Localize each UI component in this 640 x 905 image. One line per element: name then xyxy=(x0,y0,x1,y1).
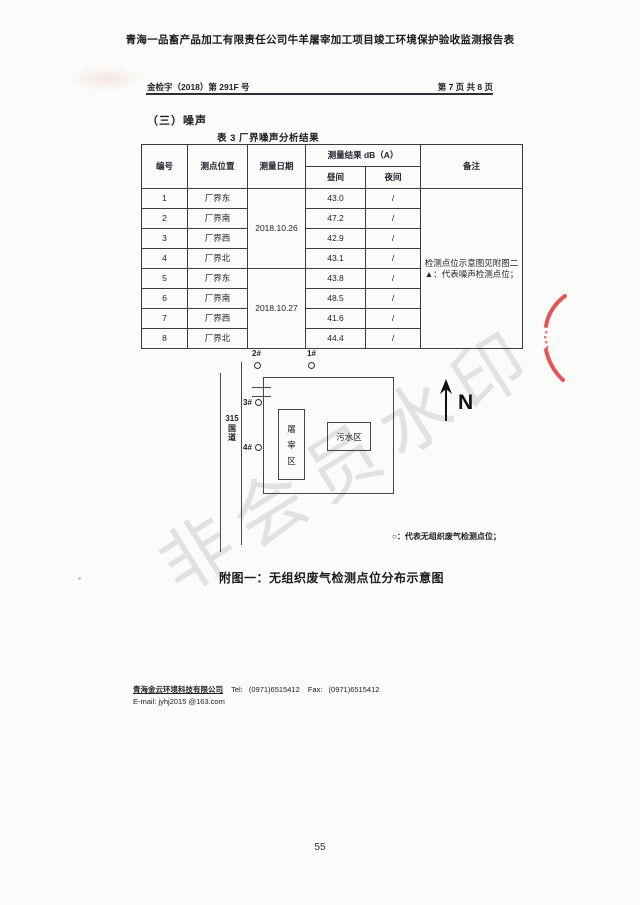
tel-value: (0971)6515412 xyxy=(249,685,300,694)
cell-night: / xyxy=(366,309,421,329)
cell-day: 47.2 xyxy=(306,209,366,229)
cell-day: 43.0 xyxy=(306,189,366,209)
cell-night: / xyxy=(366,229,421,249)
footer-contact-line: 青海金云环境科技有限公司 Tel: (0971)6515412 Fax: (09… xyxy=(133,684,379,695)
slaughter-area-label: 屠 宰 区 xyxy=(287,421,296,469)
cell-location: 厂界东 xyxy=(188,269,248,289)
scan-smudge xyxy=(70,66,142,92)
table-title: 表 3 厂界噪声分析结果 xyxy=(217,130,319,144)
noise-analysis-table: 编号 测点位置 测量日期 测量结果 dB（A） 备注 昼间 夜间 1 厂界东 2… xyxy=(141,144,523,349)
cell-day: 44.4 xyxy=(306,329,366,349)
cell-day: 42.9 xyxy=(306,229,366,249)
slaughter-area: 屠 宰 区 xyxy=(278,409,305,480)
road-line-right xyxy=(241,362,242,545)
slaughter-char-3: 区 xyxy=(287,453,296,469)
cell-day: 43.1 xyxy=(306,249,366,269)
point-label-2: 2# xyxy=(252,349,261,358)
document-title: 青海一品畜产品加工有限责任公司牛羊屠宰加工项目竣工环境保护验收监测报告表 xyxy=(0,32,640,47)
col-header-night: 夜间 xyxy=(366,167,421,189)
fax-label: Fax: xyxy=(308,685,323,694)
cell-day: 43.8 xyxy=(306,269,366,289)
gas-point-2-icon xyxy=(254,362,261,369)
tel-label: Tel: xyxy=(231,685,243,694)
sewage-area: 污水区 xyxy=(327,422,371,451)
figure-caption: 附图一：无组织废气检测点位分布示意图 xyxy=(219,569,444,586)
road-label: 315 国 道 xyxy=(223,414,241,443)
col-header-id: 编号 xyxy=(142,145,188,189)
point-label-4: 4# xyxy=(243,443,252,452)
company-name: 青海金云环境科技有限公司 xyxy=(133,685,223,694)
cell-id: 4 xyxy=(142,249,188,269)
fax-value: (0971)6515412 xyxy=(329,685,380,694)
cell-night: / xyxy=(366,269,421,289)
cell-night: / xyxy=(366,329,421,349)
footer-email-line: E-mail: jyhj2015 @163.com xyxy=(133,697,225,706)
remark-line-2: ▲：代表噪声检测点位； xyxy=(421,269,522,279)
entrance-tick-2 xyxy=(252,396,271,397)
email-label: E-mail: xyxy=(133,697,156,706)
section-heading: （三）噪声 xyxy=(147,112,207,128)
slaughter-char-2: 宰 xyxy=(287,437,296,453)
col-header-result: 测量结果 dB（A） xyxy=(306,145,421,167)
gas-point-3-icon xyxy=(255,399,262,406)
col-header-remark: 备注 xyxy=(421,145,523,189)
gas-point-4-icon xyxy=(255,444,262,451)
cell-location: 厂界南 xyxy=(188,209,248,229)
cell-id: 8 xyxy=(142,329,188,349)
cell-location: 厂界北 xyxy=(188,249,248,269)
col-header-location: 测点位置 xyxy=(188,145,248,189)
cell-night: / xyxy=(366,189,421,209)
cell-id: 2 xyxy=(142,209,188,229)
cell-night: / xyxy=(366,289,421,309)
scanned-report-page: 非会员水印 青海一品畜产品加工有限责任公司牛羊屠宰加工项目竣工环境保护验收监测报… xyxy=(0,0,640,905)
email-value: jyhj2015 @163.com xyxy=(158,697,224,706)
sewage-area-label: 污水区 xyxy=(336,431,362,443)
cell-id: 3 xyxy=(142,229,188,249)
cell-location: 厂界西 xyxy=(188,229,248,249)
cell-date-group2: 2018.10.27 xyxy=(248,269,306,349)
north-arrow-icon xyxy=(436,378,456,423)
page-indicator: 第 7 页 共 8 页 xyxy=(400,81,493,93)
cell-location: 厂界东 xyxy=(188,189,248,209)
road-label-number: 315 xyxy=(223,414,241,424)
cell-location: 厂界北 xyxy=(188,329,248,349)
cell-id: 1 xyxy=(142,189,188,209)
gas-point-legend: ○：代表无组织废气检测点位； xyxy=(392,531,501,542)
header-rule xyxy=(146,93,493,95)
page-number: 55 xyxy=(0,842,640,853)
col-header-day: 昼间 xyxy=(306,167,366,189)
point-label-1: 1# xyxy=(307,349,316,358)
cell-night: / xyxy=(366,209,421,229)
col-header-date: 测量日期 xyxy=(248,145,306,189)
cell-id: 6 xyxy=(142,289,188,309)
north-label: N xyxy=(458,391,473,415)
slaughter-char-1: 屠 xyxy=(287,421,296,437)
document-number: 金检字（2018）第 291F 号 xyxy=(147,81,250,93)
cell-day: 41.6 xyxy=(306,309,366,329)
cell-night: / xyxy=(366,249,421,269)
cell-date-group1: 2018.10.26 xyxy=(248,189,306,269)
cell-location: 厂界西 xyxy=(188,309,248,329)
cell-day: 48.5 xyxy=(306,289,366,309)
red-seal-fragment-icon xyxy=(538,293,568,385)
road-label-char-2: 道 xyxy=(223,433,241,443)
cell-id: 5 xyxy=(142,269,188,289)
road-label-char-1: 国 xyxy=(223,424,241,434)
cell-location: 厂界南 xyxy=(188,289,248,309)
remark-line-1: 检测点位示意图见附图二 xyxy=(421,258,522,268)
point-label-3: 3# xyxy=(243,398,252,407)
scan-speck xyxy=(78,577,81,580)
road-line-left xyxy=(220,373,221,552)
entrance-tick-1 xyxy=(252,387,271,388)
cell-id: 7 xyxy=(142,309,188,329)
table-row: 1 厂界东 2018.10.26 43.0 / 检测点位示意图见附图二 ▲：代表… xyxy=(142,189,523,209)
cell-remark: 检测点位示意图见附图二 ▲：代表噪声检测点位； xyxy=(421,189,523,349)
gas-point-1-icon xyxy=(308,362,315,369)
